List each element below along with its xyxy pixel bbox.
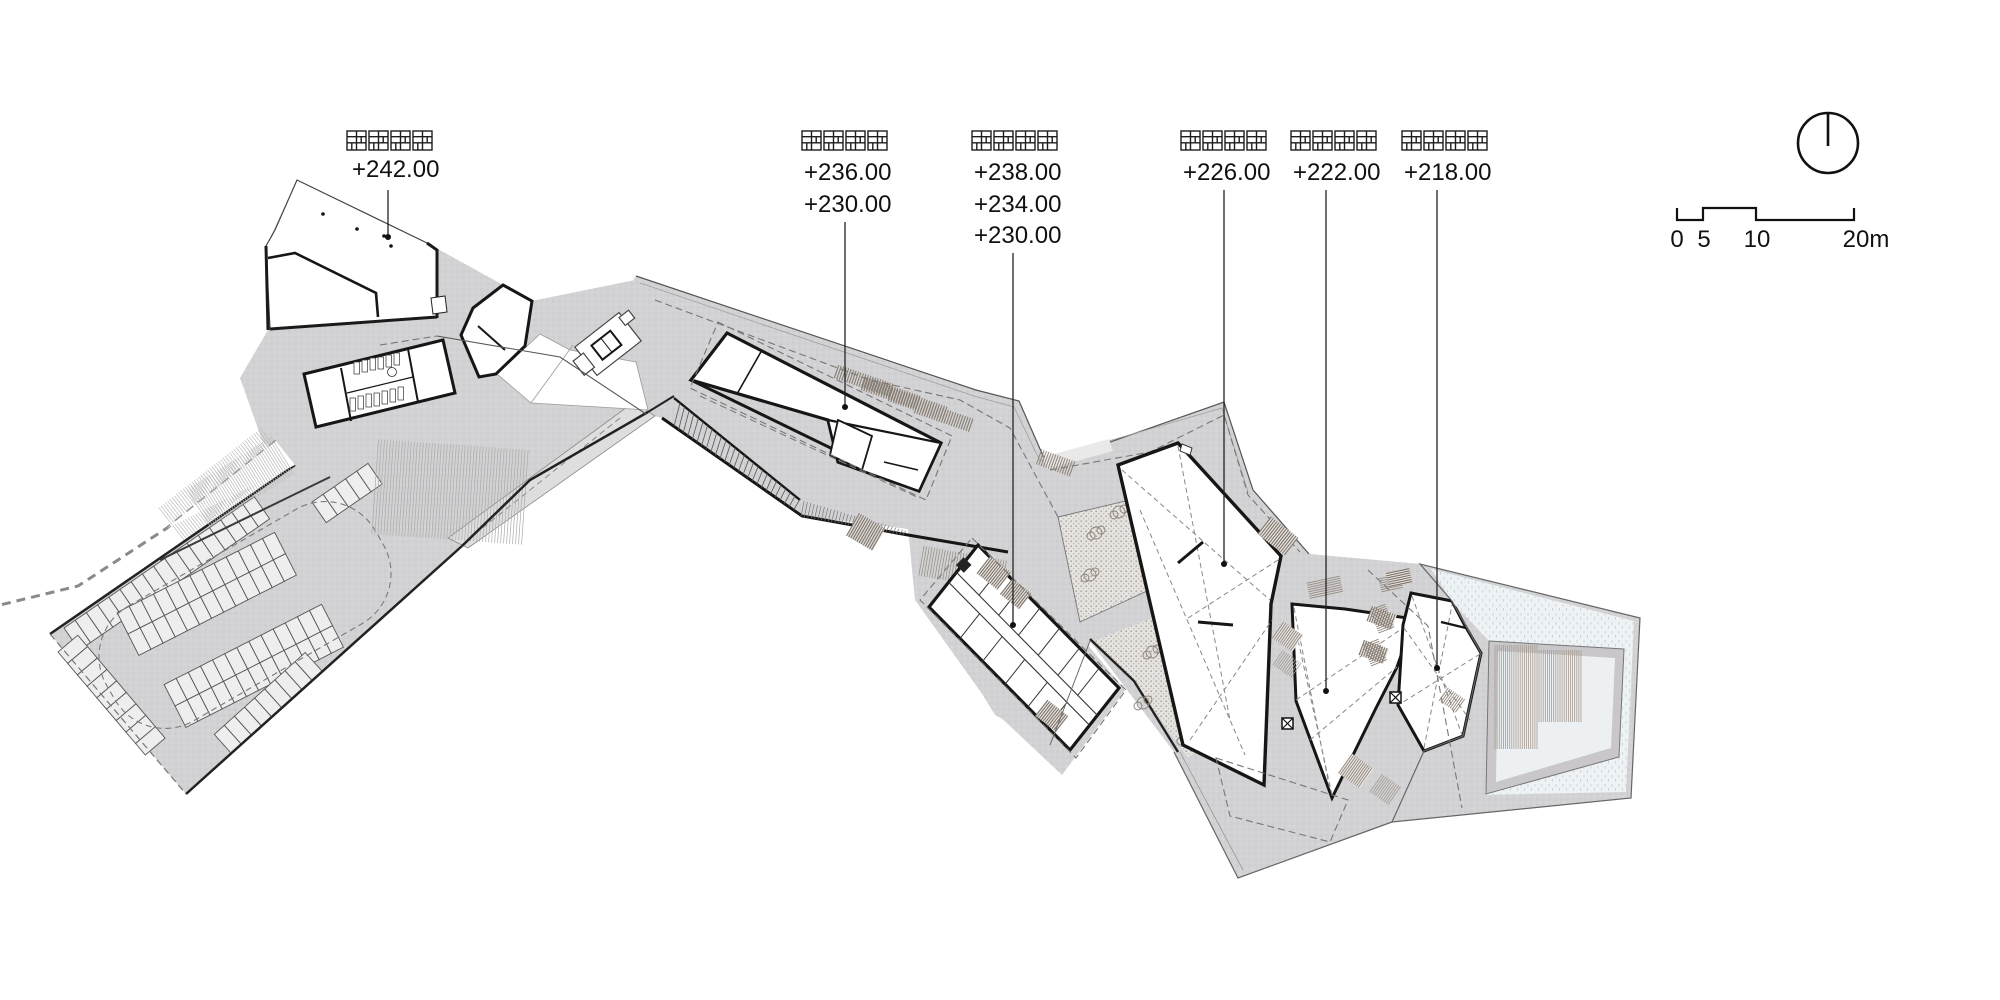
svg-text:+222.00: +222.00	[1293, 159, 1380, 186]
svg-text:20m: 20m	[1843, 226, 1890, 253]
svg-text:+218.00: +218.00	[1404, 159, 1491, 186]
svg-text:+238.00: +238.00	[974, 159, 1061, 186]
svg-text:+234.00: +234.00	[974, 191, 1061, 218]
svg-text:+230.00: +230.00	[804, 191, 891, 218]
svg-text:+226.00: +226.00	[1183, 159, 1270, 186]
svg-text:10: 10	[1744, 226, 1771, 253]
svg-text:+230.00: +230.00	[974, 222, 1061, 249]
svg-text:+236.00: +236.00	[804, 159, 891, 186]
svg-text:+242.00: +242.00	[352, 156, 439, 183]
svg-text:0: 0	[1670, 226, 1683, 253]
svg-text:5: 5	[1697, 226, 1710, 253]
